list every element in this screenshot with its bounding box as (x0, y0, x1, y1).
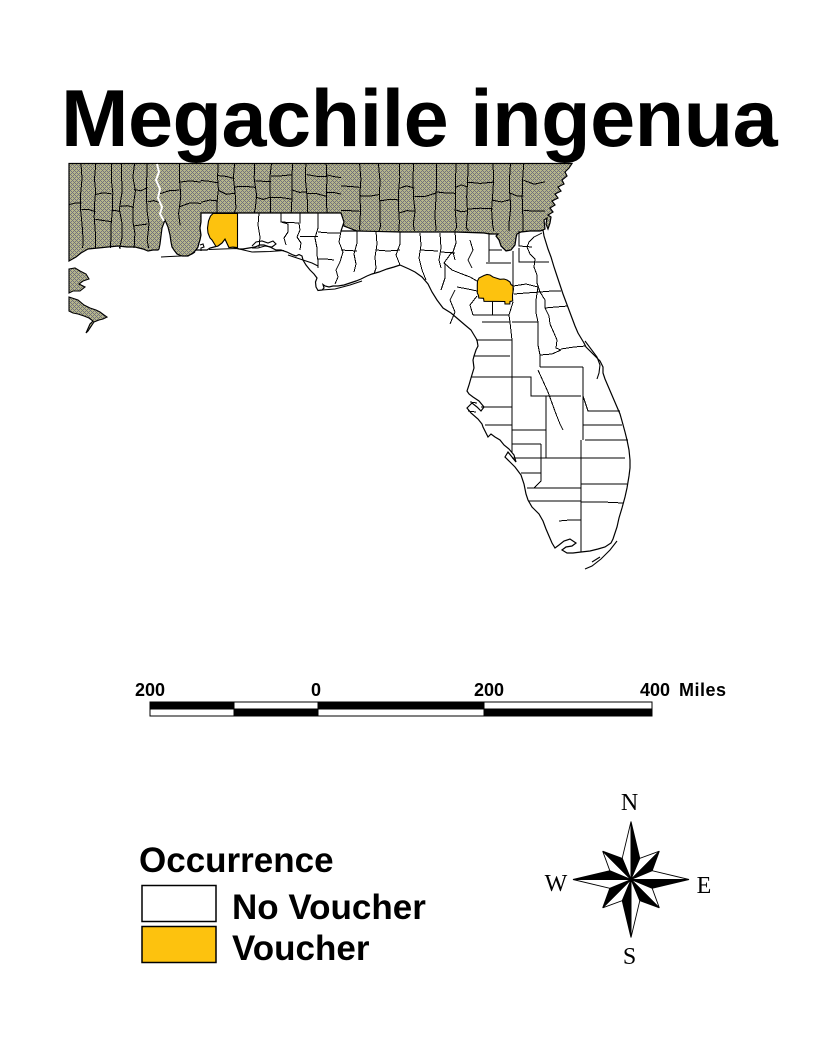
svg-text:400: 400 (640, 680, 670, 700)
svg-text:Occurrence: Occurrence (139, 841, 334, 880)
svg-text:Miles: Miles (679, 680, 727, 700)
svg-text:N: N (621, 790, 638, 816)
svg-text:S: S (623, 944, 636, 970)
svg-text:E: E (697, 873, 712, 899)
svg-text:Megachile ingenua: Megachile ingenua (61, 74, 779, 164)
svg-text:200: 200 (135, 680, 165, 700)
svg-text:No Voucher: No Voucher (232, 888, 426, 927)
svg-text:W: W (545, 871, 568, 897)
svg-text:Voucher: Voucher (232, 929, 370, 968)
svg-text:200: 200 (474, 680, 504, 700)
svg-text:0: 0 (311, 680, 321, 700)
